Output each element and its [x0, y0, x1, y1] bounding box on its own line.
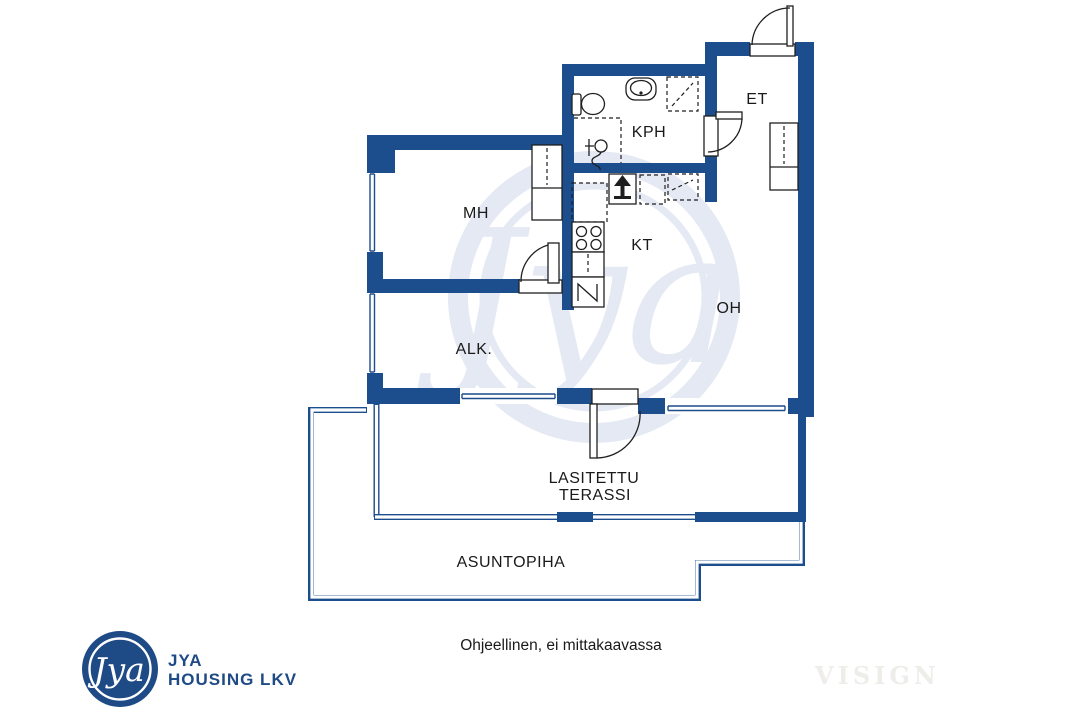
room-label-kt: KT	[631, 237, 652, 254]
wardrobe-mh	[532, 145, 562, 220]
stove-icon	[572, 222, 604, 252]
wall-kph-et-lower	[705, 156, 717, 202]
terrace-label-line1: LASITETTU	[549, 470, 640, 487]
room-label-alk: ALK.	[456, 341, 493, 358]
room-label-et: ET	[746, 91, 767, 108]
wall-bottom-alk-left	[367, 388, 460, 404]
logo-monogram: Jya	[87, 650, 145, 689]
wall-left-mid	[367, 252, 383, 293]
toilet-icon	[572, 94, 605, 116]
wall-corner-topleft	[367, 135, 395, 173]
wall-kph-top	[562, 64, 717, 76]
wall-kph-et-upper	[705, 50, 717, 116]
window-mh	[367, 173, 383, 252]
yard-label: ASUNTOPIHA	[457, 554, 566, 571]
footer: Ohjeellinen, ei mittakaavassa VISIGN Jya…	[82, 631, 940, 707]
terrace-bottom-solid-left	[557, 512, 593, 522]
wall-bottom-alk-right	[557, 388, 592, 404]
entrance-door	[750, 6, 795, 56]
wall-bottom-oh-left	[638, 398, 665, 414]
floorplan-page: Jya	[0, 0, 1066, 711]
bathroom-sink-icon	[626, 78, 656, 100]
wall-kph-bottom	[562, 163, 705, 173]
terrace-wall-right	[798, 407, 806, 522]
kph-door	[704, 112, 742, 156]
wall-right	[798, 42, 814, 417]
shower-icon	[667, 77, 698, 111]
window-alk-left	[367, 293, 383, 373]
room-label-kph: KPH	[632, 124, 666, 141]
disclaimer-text: Ohjeellinen, ei mittakaavassa	[460, 637, 662, 654]
room-label-mh: MH	[463, 205, 489, 222]
window-oh-bottom	[665, 398, 788, 414]
kitchen-sink-icon	[609, 174, 636, 204]
terrace-bottom-solid-right	[695, 512, 804, 522]
window-alk-bottom	[460, 388, 557, 404]
logo-name-line2: HOUSING LKV	[168, 670, 297, 689]
jya-housing-logo: Jya JYA HOUSING LKV	[82, 631, 297, 707]
room-label-oh: OH	[717, 300, 742, 317]
producer-watermark: VISIGN	[814, 661, 940, 690]
logo-name-line1: JYA	[168, 651, 203, 670]
wardrobe-et	[770, 123, 798, 190]
terrace-label-line2: TERASSI	[559, 487, 631, 504]
wall-mh-alk	[383, 279, 520, 293]
floorplan-canvas: Jya	[0, 0, 1066, 711]
kitchen-lower-counter	[572, 252, 604, 277]
wall-et-top-left	[705, 42, 750, 56]
fridge-icon	[572, 277, 604, 307]
